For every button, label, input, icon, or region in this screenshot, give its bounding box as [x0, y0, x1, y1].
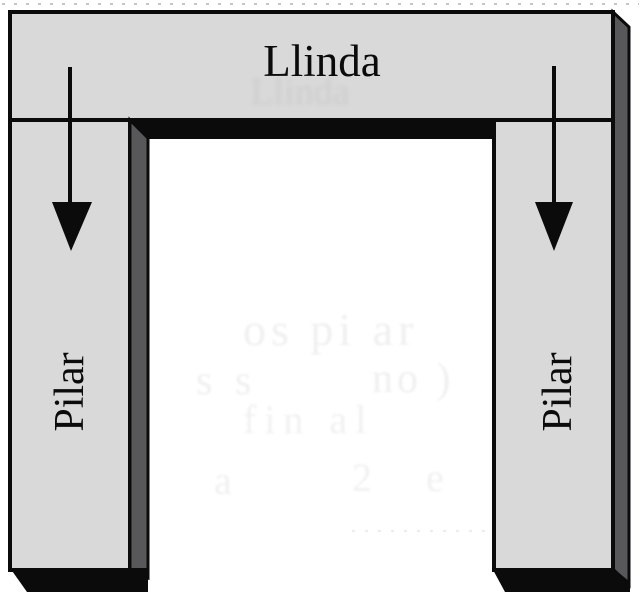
right-side-depth-shadow	[613, 12, 629, 585]
post-and-lintel-diagram: os pi ar s s no ) fin al a 2 e Llinda Ll…	[0, 0, 641, 600]
ghost-text-line3: fin al	[243, 397, 374, 442]
ghost-text-line4b: 2 e	[352, 455, 466, 500]
ghost-text-line2b: no )	[372, 356, 455, 402]
left-pillar-label: Pilar	[47, 352, 93, 431]
ghost-text-line1: os pi ar	[243, 304, 418, 355]
left-pillar-base	[10, 568, 148, 592]
right-pillar-base	[492, 568, 630, 592]
right-pillar-label: Pilar	[535, 352, 581, 431]
scanned-figure: os pi ar s s no ) fin al a 2 e Llinda Ll…	[0, 0, 641, 600]
ghost-text-line4a: a	[214, 458, 232, 503]
opening-left-depth-shadow	[130, 120, 148, 578]
lintel-label: Llinda	[263, 36, 380, 86]
lintel-underside-shadow	[130, 120, 494, 139]
